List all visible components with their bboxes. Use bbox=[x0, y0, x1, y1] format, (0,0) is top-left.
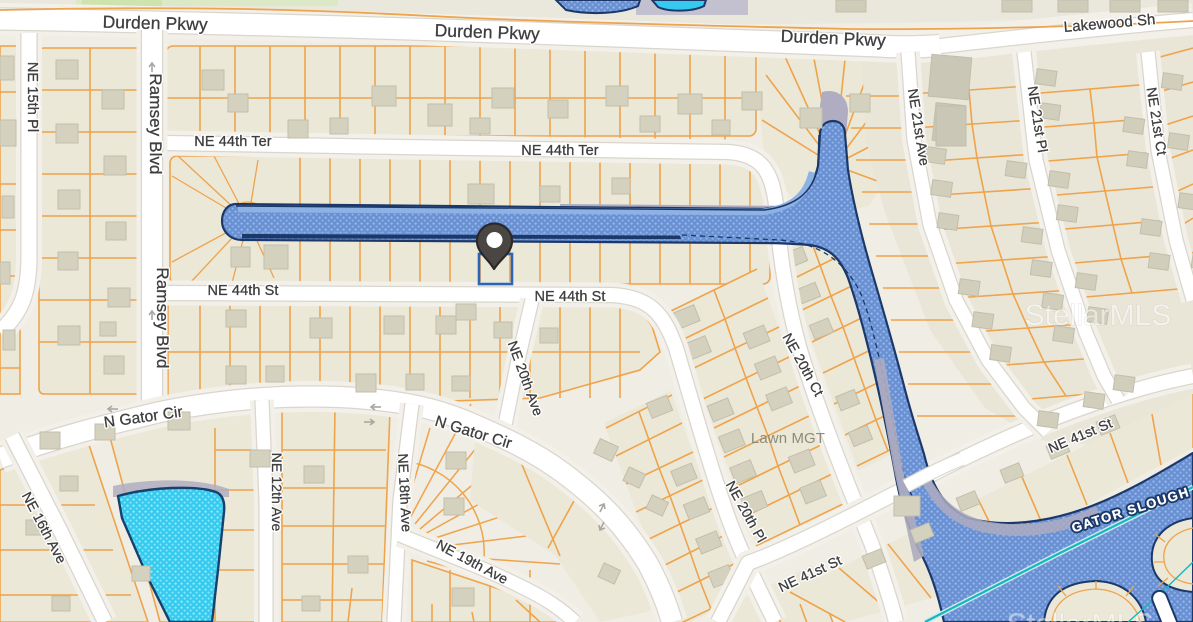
svg-text:StellarMLS: StellarMLS bbox=[1025, 299, 1172, 332]
svg-text:Ramsey Blvd: Ramsey Blvd bbox=[146, 73, 165, 174]
svg-text:Durden Pkwy: Durden Pkwy bbox=[434, 20, 540, 44]
svg-text:NE 44th Ter: NE 44th Ter bbox=[521, 143, 598, 159]
svg-text:NE 44th St: NE 44th St bbox=[207, 283, 278, 299]
svg-text:Lawn MGT: Lawn MGT bbox=[751, 430, 825, 447]
svg-text:StellarMLS: StellarMLS bbox=[1007, 608, 1154, 622]
svg-text:NE 44th Ter: NE 44th Ter bbox=[194, 134, 271, 150]
svg-text:Ramsey Blvd: Ramsey Blvd bbox=[153, 267, 172, 368]
svg-text:NE 12th Ave: NE 12th Ave bbox=[269, 453, 285, 532]
svg-text:Durden Pkwy: Durden Pkwy bbox=[102, 12, 208, 35]
svg-text:NE 44th St: NE 44th St bbox=[534, 289, 605, 305]
svg-text:NE 15th Pl: NE 15th Pl bbox=[24, 62, 40, 132]
